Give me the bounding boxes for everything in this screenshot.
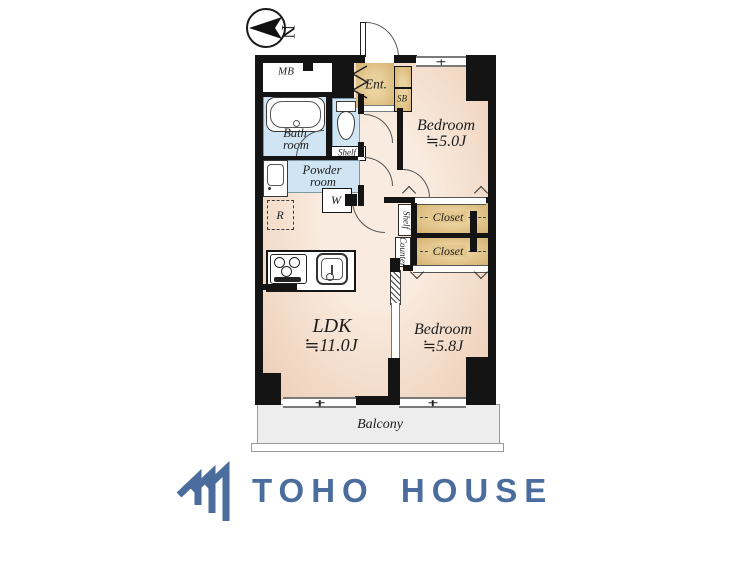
compass-n-label: N xyxy=(277,25,298,39)
powder-room-label-2: room xyxy=(310,176,336,189)
wall xyxy=(466,357,496,405)
bedroom2-window xyxy=(399,397,466,408)
wall xyxy=(326,94,332,160)
ldk-size: ≒11.0J xyxy=(304,336,357,354)
wall xyxy=(358,142,364,157)
entrance-door-arc xyxy=(366,22,399,58)
wall xyxy=(397,108,403,170)
wall xyxy=(332,55,354,98)
wall xyxy=(486,197,496,203)
ldk-name: LDK xyxy=(313,316,352,336)
wall xyxy=(255,373,281,405)
wall xyxy=(488,55,496,405)
wall xyxy=(263,156,358,160)
stove-icon xyxy=(270,254,307,284)
wall xyxy=(345,194,357,206)
wall xyxy=(263,284,297,290)
sliding-door-panel xyxy=(390,270,401,305)
wall xyxy=(388,358,400,405)
wall xyxy=(358,185,364,206)
toho-house-logo-icon xyxy=(176,460,242,522)
toho-house-logo-text: TOHO HOUSE xyxy=(252,472,553,510)
washbasin-icon xyxy=(263,160,288,197)
closet1-door-line xyxy=(415,197,486,205)
wall xyxy=(390,258,400,272)
wall xyxy=(384,197,404,203)
floorplan-page: N Balcony MB Bath room Shelf Powder room… xyxy=(0,0,750,563)
bedroom1-name: Bedroom xyxy=(417,118,475,134)
bedroom2-name: Bedroom xyxy=(414,322,472,338)
bedroom2-size: ≒5.8J xyxy=(423,339,464,355)
meter-box-area xyxy=(263,58,333,94)
bedroom1-window xyxy=(416,56,466,67)
ldk-window xyxy=(283,397,356,408)
wall xyxy=(263,92,335,97)
balcony-label: Balcony xyxy=(357,418,403,432)
wall xyxy=(470,211,477,252)
washer-label: W xyxy=(331,194,341,206)
sink-icon xyxy=(316,253,348,285)
wall xyxy=(255,55,263,405)
shoebox-label: SB xyxy=(397,95,407,104)
wall xyxy=(411,233,496,238)
fridge-label: R xyxy=(276,209,283,221)
bedroom1-size: ≒5.0J xyxy=(426,134,467,150)
sliding-door-track xyxy=(391,303,400,358)
north-compass-icon: N xyxy=(244,5,304,51)
shoebox-area xyxy=(394,66,412,112)
wall xyxy=(358,94,364,114)
meter-box-label: MB xyxy=(278,67,294,78)
closet2-label: Closet xyxy=(430,245,467,257)
wall xyxy=(394,55,417,63)
closet1-label: Closet xyxy=(430,211,467,223)
balcony-rail xyxy=(251,443,504,452)
